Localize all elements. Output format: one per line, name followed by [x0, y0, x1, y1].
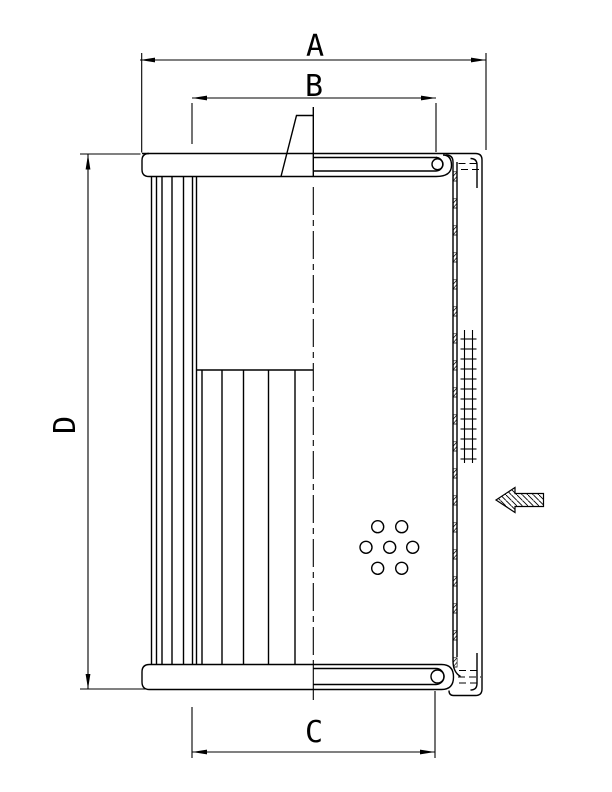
arrowhead-c-right [420, 750, 435, 755]
seam-hatch-marks [453, 172, 457, 668]
dim-label-b: B [305, 69, 323, 104]
dim-label-a: A [306, 29, 324, 64]
top-end-cap [142, 154, 452, 177]
arrowhead-b-left [192, 96, 207, 101]
spring-rungs [461, 334, 477, 464]
o-ring-bottom [431, 670, 444, 683]
shell-inner-corner-top [471, 159, 478, 189]
dimension-c: C [192, 691, 435, 758]
dim-label-c: C [305, 715, 323, 750]
arrowhead-b-right [421, 96, 436, 101]
spring-symbol [461, 330, 477, 464]
bottom-end-cap [142, 665, 454, 690]
seam [446, 155, 461, 677]
pleated-media [152, 177, 314, 665]
flow-arrow-icon [496, 488, 544, 513]
shell-inner-corner-bottom [471, 653, 478, 690]
arrowhead-c-left [192, 750, 207, 755]
o-ring-top [432, 159, 443, 170]
top-cap-tab [281, 107, 313, 177]
bypass-holes [360, 521, 419, 575]
dimension-d: D [48, 154, 147, 689]
dimension-b: B [192, 69, 436, 152]
arrowhead-d-bottom [86, 674, 91, 689]
drawing-page: A B C [0, 0, 612, 792]
element-body [142, 107, 482, 700]
arrowhead-a-right [471, 58, 486, 63]
filter-element-technical-drawing: A B C [0, 0, 612, 792]
arrowhead-d-top [86, 155, 91, 170]
dim-label-d: D [48, 416, 83, 434]
